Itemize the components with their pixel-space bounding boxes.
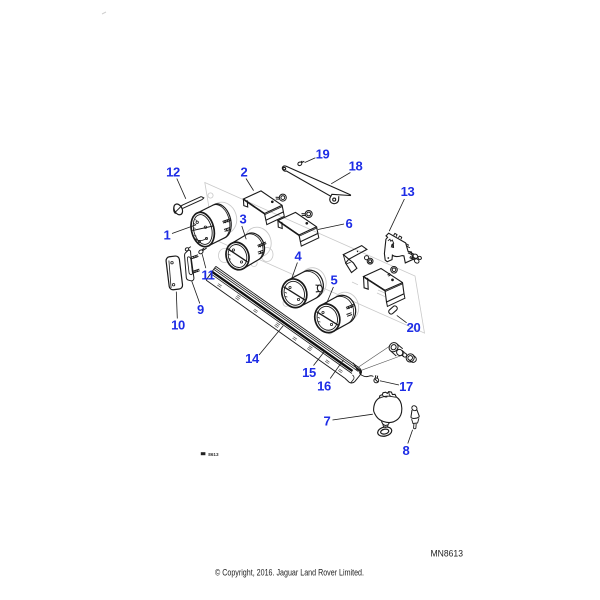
svg-text:15: 15	[302, 365, 316, 380]
svg-text:8: 8	[403, 443, 410, 458]
svg-text:4: 4	[295, 249, 303, 264]
svg-text:12: 12	[166, 165, 180, 180]
svg-text:17: 17	[399, 379, 413, 394]
svg-text:6: 6	[346, 216, 353, 231]
svg-text:14: 14	[245, 351, 260, 366]
svg-text:11: 11	[201, 268, 214, 283]
svg-text:8613: 8613	[208, 452, 219, 457]
svg-text:7: 7	[324, 414, 331, 429]
svg-text:1: 1	[164, 228, 171, 243]
svg-text:18: 18	[349, 159, 363, 174]
svg-text:10: 10	[171, 318, 185, 333]
svg-text:5: 5	[331, 273, 338, 288]
svg-text:13: 13	[401, 184, 415, 199]
svg-text:2: 2	[241, 164, 248, 179]
svg-text:3: 3	[240, 212, 247, 227]
svg-text:© Copyright, 2016. Jaguar Land: © Copyright, 2016. Jaguar Land Rover Lim…	[215, 567, 364, 577]
svg-text:19: 19	[316, 147, 330, 162]
svg-text:16: 16	[317, 379, 331, 394]
svg-text:20: 20	[407, 320, 421, 335]
svg-text:MN8613: MN8613	[431, 549, 464, 559]
svg-text:9: 9	[197, 302, 204, 317]
